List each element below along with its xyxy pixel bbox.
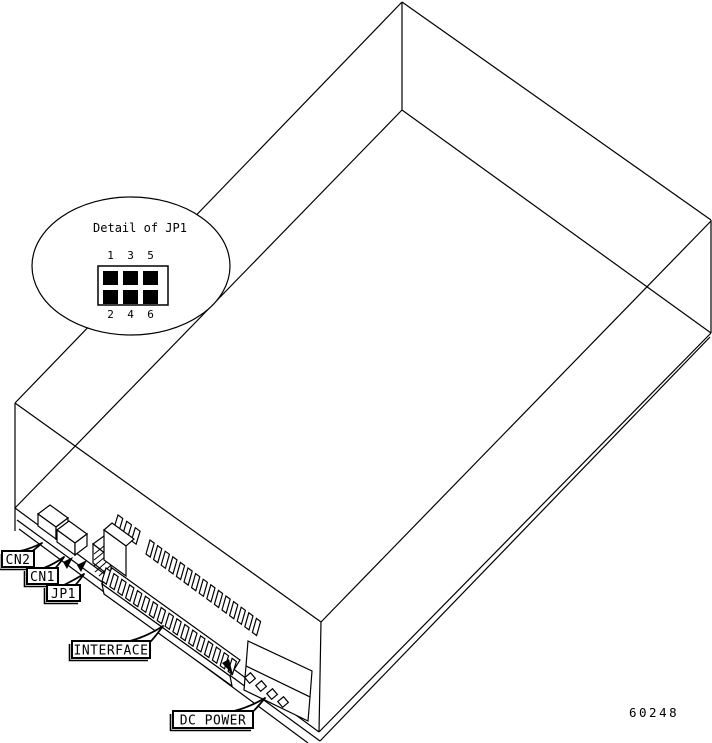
callout-cn2: CN2 [0, 543, 42, 570]
figure-number: 60248 [629, 705, 679, 720]
callout-dc-power: DC POWER [171, 698, 266, 731]
jp1-pin-label-6: 6 [147, 308, 154, 321]
cn2-label: CN2 [6, 553, 31, 568]
detail-title: Detail of JP1 [93, 221, 187, 235]
callout-interface: INTERFACE [70, 626, 164, 661]
jp1-pin-label-1: 1 [107, 249, 114, 262]
dc-power-label: DC POWER [180, 714, 247, 729]
figure-canvas: Detail of JP1 1 3 5 2 4 6 CN2 CN1 JP1 [0, 0, 712, 743]
enclosure-wireframe [15, 2, 711, 743]
enclosure-edges [15, 2, 711, 732]
interface-housing-front [102, 584, 232, 686]
jp1-pin-label-3: 3 [127, 249, 134, 262]
jp1-pin-label-2: 2 [107, 308, 114, 321]
detail-of-jp1-callout: Detail of JP1 1 3 5 2 4 6 [32, 197, 230, 335]
interface-label: INTERFACE [74, 644, 149, 659]
jp1-label: JP1 [51, 587, 76, 602]
cn1-connector [57, 521, 87, 555]
cn1-label: CN1 [30, 570, 55, 585]
drive-diagram: Detail of JP1 1 3 5 2 4 6 CN2 CN1 JP1 [0, 0, 712, 743]
jp1-pin-label-5: 5 [147, 249, 154, 262]
jp1-pin-label-4: 4 [127, 308, 134, 321]
